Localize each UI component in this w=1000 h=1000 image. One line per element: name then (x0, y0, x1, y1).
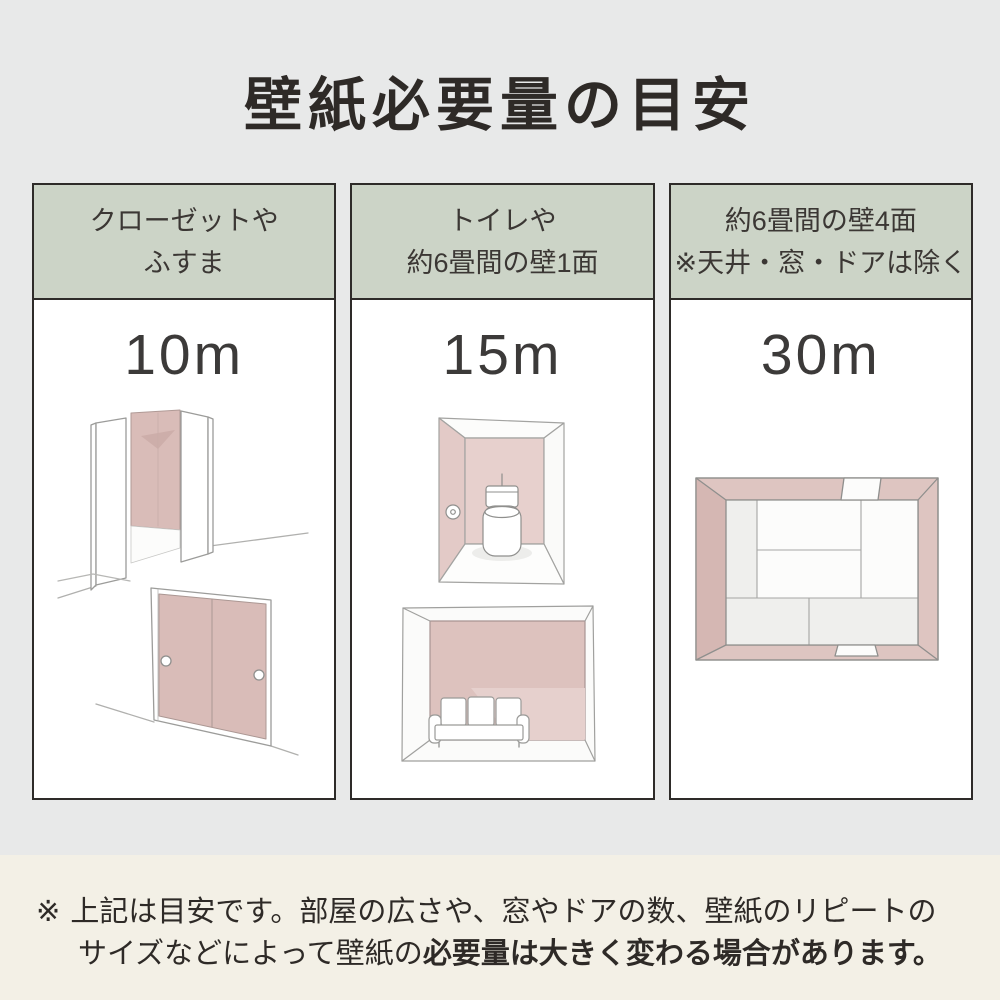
header-line-2: ※天井・窓・ドアは除く (675, 244, 968, 282)
fusuma-illustration (38, 573, 330, 798)
header-line-2: 約6畳間の壁1面 (406, 244, 598, 282)
footnote: ※上記は目安です。部屋の広さや、窓やドアの数、壁紙のリピートの サイズなどによっ… (0, 855, 1000, 1000)
column-toilet-header: トイレや 約6畳間の壁1面 (352, 185, 652, 300)
header-line-1: トイレや (448, 202, 556, 240)
footnote-text-1: 上記は目安です。部屋の広さや、窓やドアの数、壁紙のリピートの (70, 896, 936, 928)
column-closet-fusuma: クローゼットや ふすま 10m (32, 183, 336, 800)
footnote-text-2-bold: 必要量は大きく変わる場合があります。 (423, 938, 942, 970)
closet-illustration (40, 396, 330, 601)
page-title: 壁紙必要量の目安 (0, 58, 1000, 142)
footnote-text-2-regular: サイズなどによって壁紙の (78, 938, 423, 970)
footnote-line-2: サイズなどによって壁紙の必要量は大きく変わる場合があります。 (78, 933, 942, 975)
meter-value-four-walls: 30m (671, 322, 971, 388)
column-four-walls: 約6畳間の壁4面 ※天井・窓・ドアは除く 30m (669, 183, 973, 800)
meter-value-toilet: 15m (352, 322, 652, 388)
column-toilet-body: 15m (352, 300, 652, 798)
header-line-1: 約6畳間の壁4面 (725, 202, 917, 240)
column-toilet-wall: トイレや 約6畳間の壁1面 15m (350, 183, 654, 800)
column-closet-header: クローゼットや ふすま (34, 185, 334, 300)
room-one-wall-illustration (385, 588, 617, 793)
guide-table: クローゼットや ふすま 10m (32, 183, 973, 800)
header-line-2: ふすま (144, 244, 225, 282)
tatami-room-overhead-illustration (676, 438, 966, 698)
column-four-walls-header: 約6畳間の壁4面 ※天井・窓・ドアは除く (671, 185, 971, 300)
toilet-room-illustration (397, 396, 607, 601)
header-line-1: クローゼットや (90, 202, 279, 240)
column-closet-body: 10m (34, 300, 334, 798)
footnote-line-1: ※上記は目安です。部屋の広さや、窓やドアの数、壁紙のリピートの (36, 891, 937, 933)
reference-mark: ※ (36, 896, 60, 928)
meter-value-closet: 10m (34, 322, 334, 388)
column-four-walls-body: 30m (671, 300, 971, 798)
